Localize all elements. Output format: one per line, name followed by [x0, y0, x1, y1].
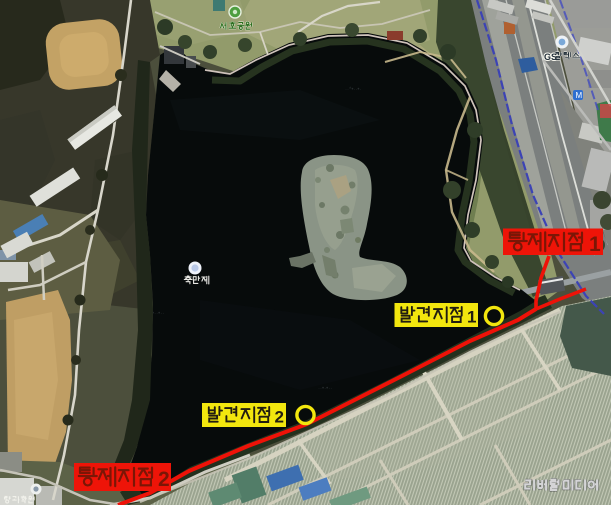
- svg-text:··*•··•·: ··*•··•·: [345, 87, 362, 93]
- svg-text:··•·•··: ··•·•··: [318, 386, 332, 392]
- svg-text:2: 2: [158, 468, 170, 491]
- svg-text:1: 1: [589, 233, 601, 256]
- svg-text:1: 1: [467, 308, 476, 327]
- svg-text:M: M: [576, 91, 583, 100]
- svg-text:GS: GS: [544, 52, 557, 62]
- svg-text:2: 2: [275, 408, 284, 427]
